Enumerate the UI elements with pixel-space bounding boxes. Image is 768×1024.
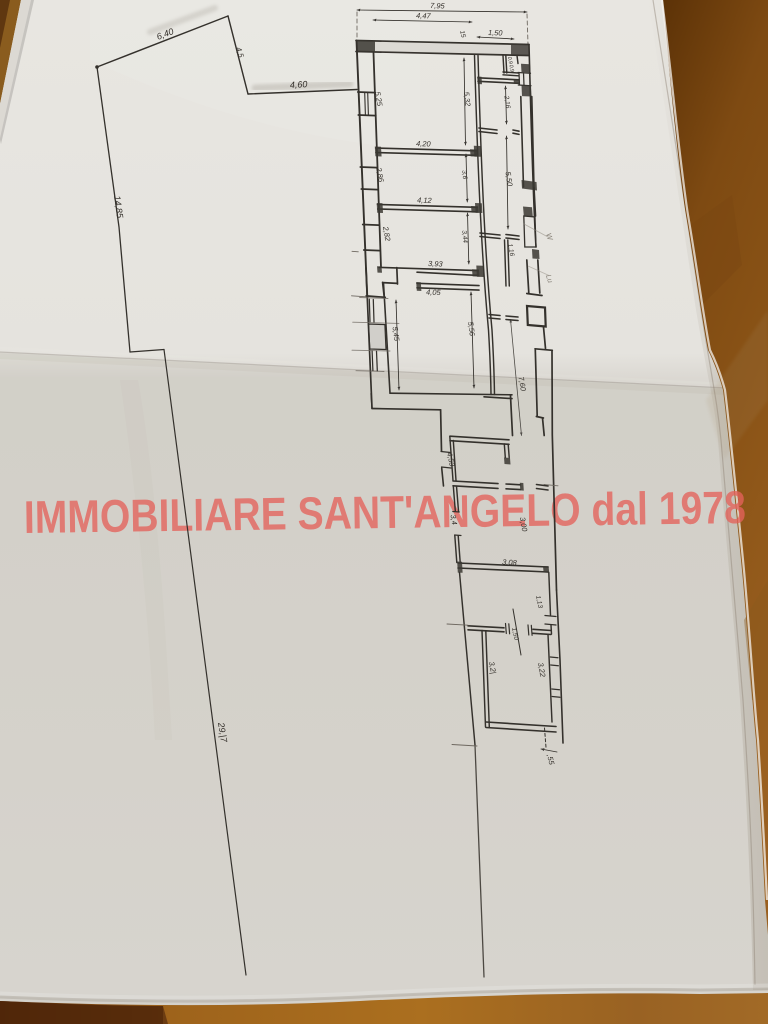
svg-text:5,32: 5,32 xyxy=(462,91,472,106)
svg-text:3,6: 3,6 xyxy=(460,170,468,180)
svg-text:7,95: 7,95 xyxy=(430,1,446,11)
svg-text:4,60: 4,60 xyxy=(290,79,308,90)
svg-text:0,9: 0,9 xyxy=(506,56,513,64)
svg-text:3,4: 3,4 xyxy=(448,514,459,526)
svg-text:0,9: 0,9 xyxy=(508,64,515,72)
svg-text:3,44: 3,44 xyxy=(460,230,468,244)
svg-text:4,05: 4,05 xyxy=(426,288,442,298)
svg-text:IMMOBILIARE SANT'ANGELO dal 19: IMMOBILIARE SANT'ANGELO dal 1978 xyxy=(23,481,746,543)
svg-text:4,12: 4,12 xyxy=(417,196,433,206)
svg-text:4,20: 4,20 xyxy=(416,139,432,149)
svg-text:3,08: 3,08 xyxy=(502,557,518,567)
svg-text:4,47: 4,47 xyxy=(416,11,432,21)
svg-text:1,50: 1,50 xyxy=(488,28,504,38)
svg-text:3,93: 3,93 xyxy=(428,259,444,269)
